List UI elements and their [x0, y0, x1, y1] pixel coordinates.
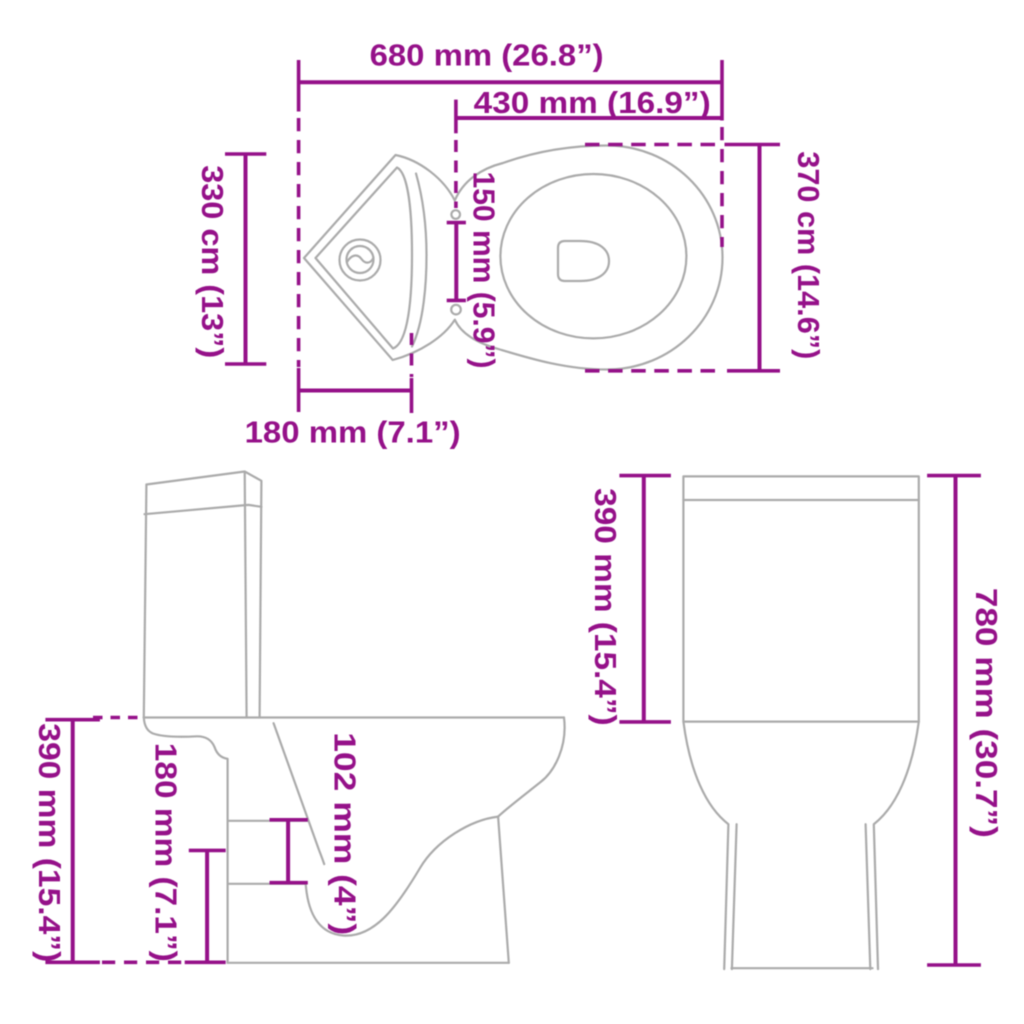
svg-text:390 mm (15.4”): 390 mm (15.4”): [588, 488, 623, 726]
svg-text:780 mm (30.7”): 780 mm (30.7”): [969, 588, 1004, 838]
svg-text:330 cm (13”): 330 cm (13”): [195, 165, 230, 358]
svg-text:390 mm (15.4”): 390 mm (15.4”): [32, 723, 67, 962]
svg-text:102 mm (4”): 102 mm (4”): [328, 732, 363, 935]
svg-text:150 mm (5.9”): 150 mm (5.9”): [467, 172, 502, 369]
svg-text:680 mm (26.8”): 680 mm (26.8”): [370, 38, 604, 73]
svg-text:180 mm (7.1”): 180 mm (7.1”): [245, 414, 461, 449]
svg-text:370 cm (14.6”): 370 cm (14.6”): [791, 151, 826, 359]
svg-text:430 mm (16.9”): 430 mm (16.9”): [474, 85, 711, 120]
svg-text:180 mm (7.1”): 180 mm (7.1”): [149, 743, 184, 962]
